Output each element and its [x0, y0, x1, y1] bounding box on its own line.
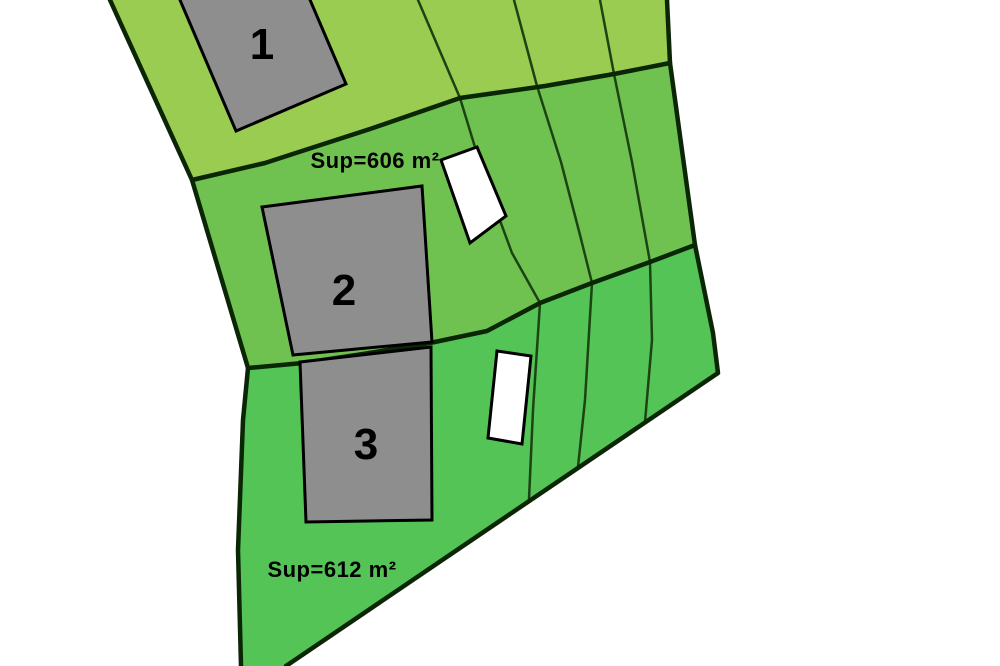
- site-plan: 1 2 3 Sup=606 m² Sup=612 m²: [0, 0, 1000, 666]
- parcel-2-area-label: Sup=606 m²: [310, 148, 439, 173]
- building-3-label: 3: [354, 420, 378, 469]
- building-1-label: 1: [250, 20, 274, 69]
- parcel-3-area-label: Sup=612 m²: [267, 557, 396, 582]
- annex-parcel-3: [488, 351, 531, 444]
- building-2-label: 2: [332, 266, 356, 315]
- site-plan-canvas: 1 2 3 Sup=606 m² Sup=612 m²: [0, 0, 1000, 666]
